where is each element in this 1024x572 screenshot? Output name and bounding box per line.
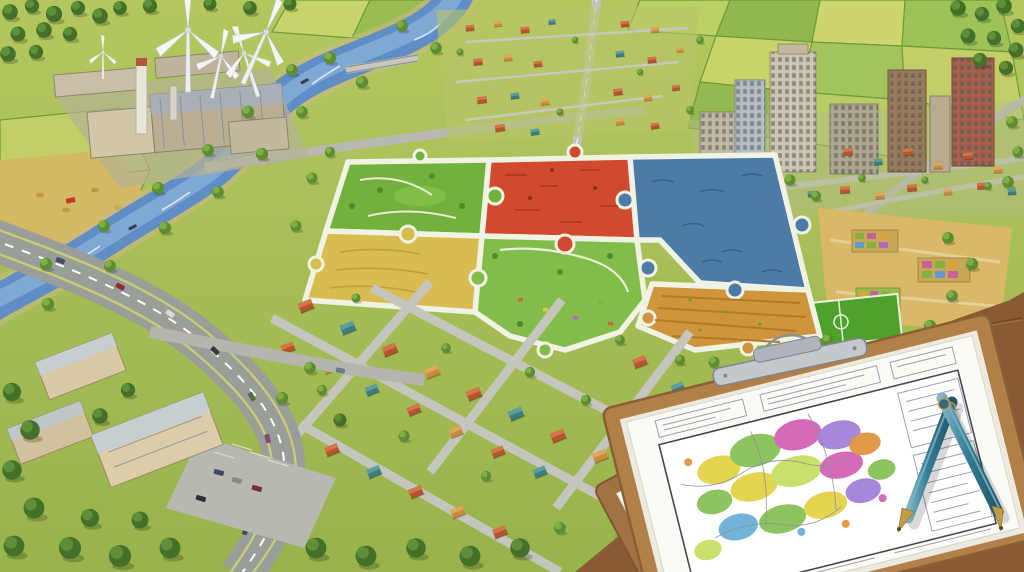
chimney [136,58,147,134]
town [436,6,705,142]
chimney-small [170,86,177,120]
town-ground [436,6,700,142]
chimney-band [136,58,147,66]
factory-annex [228,117,289,154]
aerial-landscape-illustration [0,0,1024,572]
illustration-stage [0,0,1024,572]
pen-cap-band [939,399,950,410]
puzzle-piece-red [482,157,637,240]
